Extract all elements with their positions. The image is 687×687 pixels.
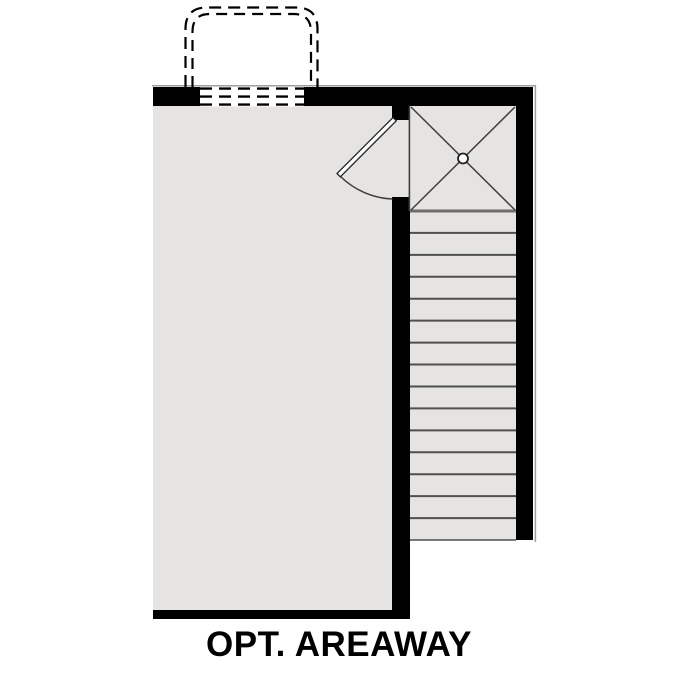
- floor-drain-circle: [458, 154, 468, 164]
- plan-title: OPT. AREAWAY: [206, 627, 472, 662]
- room-floor: [153, 106, 410, 610]
- door-jamb-stub: [392, 106, 410, 120]
- window-opening: [200, 87, 304, 107]
- floorplan-canvas: OPT. AREAWAY: [0, 0, 687, 687]
- right-wall: [516, 87, 533, 540]
- floorplan-drawing: [0, 0, 687, 687]
- bottom-wall: [153, 610, 410, 619]
- areaway-outline-outer: [186, 8, 318, 88]
- areaway-outline-inner: [193, 14, 312, 87]
- interior-stair-wall: [392, 197, 410, 619]
